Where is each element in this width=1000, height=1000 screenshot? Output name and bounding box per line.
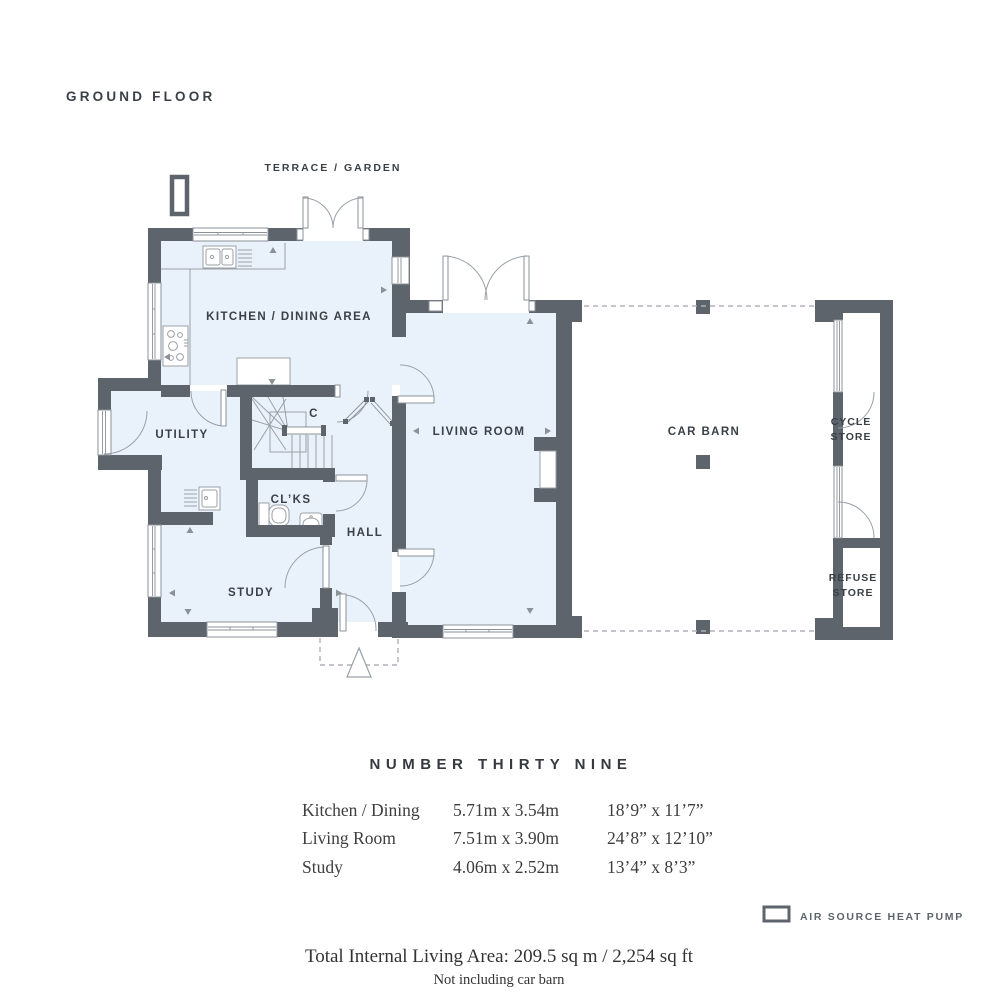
hob: [163, 326, 188, 366]
terrace-label: TERRACE / GARDEN: [264, 162, 401, 174]
window-kitchen-top: [193, 228, 268, 241]
table-row-imperial: 13’4” x 8’3”: [607, 857, 695, 877]
room-label-refuse-store-2: STORE: [833, 587, 874, 599]
heat-pump-unit: [172, 177, 187, 214]
floorplan-drawing: GROUND FLOOR TERRACE / GARDEN KITCHEN / …: [0, 0, 1000, 1000]
fireplace-niche: [540, 451, 556, 488]
room-label-refuse-store-1: REFUSE: [829, 572, 878, 584]
table-row-imperial: 18’9” x 11’7”: [607, 800, 704, 820]
window-study-left: [148, 525, 161, 597]
window-kitchen-east: [392, 257, 409, 284]
room-label-cycle-store-1: CYCLE: [831, 416, 872, 428]
heat-pump-icon: [764, 907, 789, 921]
porch: [320, 638, 398, 677]
floorplan-page: GROUND FLOOR TERRACE / GARDEN KITCHEN / …: [0, 0, 1000, 1000]
window-kitchen-left: [148, 283, 161, 360]
total-area: Total Internal Living Area: 209.5 sq m /…: [305, 946, 694, 967]
room-label-cycle-store-2: STORE: [831, 431, 872, 443]
kitchen-island: [237, 358, 290, 385]
garden-double-door: [429, 256, 535, 311]
table-row-room: Living Room: [302, 828, 396, 848]
table-row-imperial: 24’8” x 12’10”: [607, 828, 713, 848]
wc: [259, 503, 289, 528]
dimensions-table: Kitchen / Dining 5.71m x 3.54m 18’9” x 1…: [302, 800, 713, 877]
terrace-double-door: [297, 197, 369, 240]
plot-title: NUMBER THIRTY NINE: [370, 756, 633, 773]
car-barn-pillars: [696, 300, 710, 634]
entrance-marker: [347, 648, 371, 677]
floor-title: GROUND FLOOR: [66, 89, 215, 104]
table-row-metric: 7.51m x 3.90m: [453, 828, 559, 848]
room-label-study: STUDY: [228, 587, 274, 599]
table-row-room: Study: [302, 857, 343, 877]
window-living-bottom: [443, 625, 513, 638]
stair-handrail: [284, 427, 324, 434]
cycle-store-door-bottom: [834, 466, 874, 538]
room-label-cloakroom: CL’KS: [271, 494, 312, 506]
room-label-car-barn: CAR BARN: [668, 426, 741, 438]
table-row-metric: 5.71m x 3.54m: [453, 800, 559, 820]
legend-label: AIR SOURCE HEAT PUMP: [800, 911, 964, 923]
room-label-cupboard: C: [309, 408, 319, 420]
table-row-room: Kitchen / Dining: [302, 800, 420, 820]
room-label-kitchen: KITCHEN / DINING AREA: [206, 311, 372, 323]
total-area-note: Not including car barn: [434, 972, 566, 988]
room-label-living-room: LIVING ROOM: [433, 426, 526, 438]
table-row-metric: 4.06m x 2.52m: [453, 857, 559, 877]
legend: AIR SOURCE HEAT PUMP: [764, 907, 964, 923]
room-label-utility: UTILITY: [155, 429, 208, 441]
window-study-bottom: [207, 622, 277, 637]
room-label-hall: HALL: [347, 527, 383, 539]
